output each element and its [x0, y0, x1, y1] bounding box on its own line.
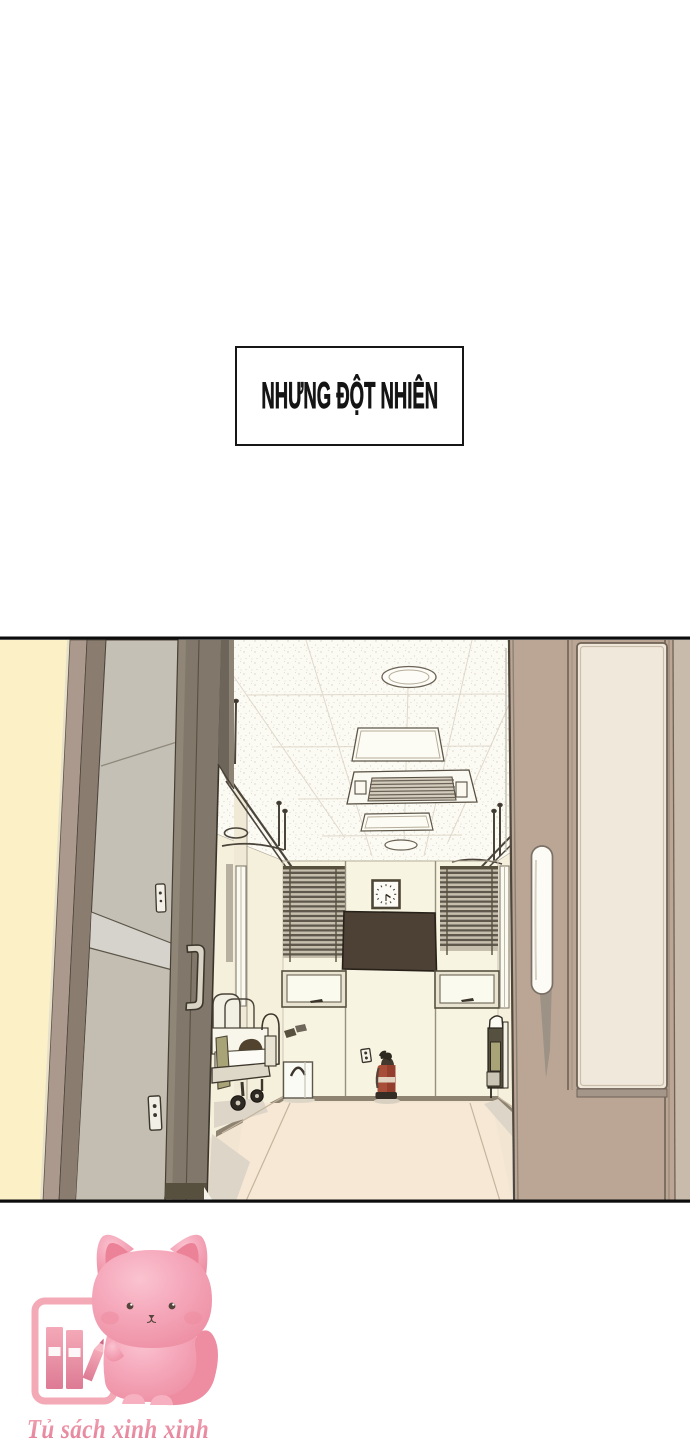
svg-text:Tủ sách xinh xinh: Tủ sách xinh xinh [27, 1414, 209, 1444]
